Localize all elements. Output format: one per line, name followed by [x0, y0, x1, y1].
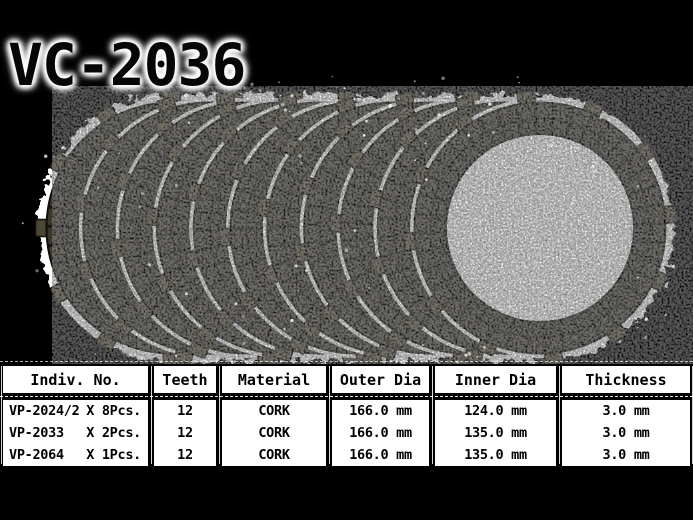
- quantity: X 2Pcs.: [86, 425, 141, 441]
- cell-outer-dia: 166.0 mm: [332, 400, 429, 422]
- cell-inner-dia: 135.0 mm: [435, 444, 556, 466]
- table-gridline: [559, 366, 560, 464]
- table-gridline: [151, 366, 152, 464]
- page-title: VC-2036: [8, 36, 245, 94]
- column-header-thickness: Thickness: [562, 366, 690, 393]
- table-gridline: [692, 366, 693, 464]
- column-header-indiv-no: Indiv. No.: [3, 366, 148, 393]
- cell-material: CORK: [222, 422, 326, 444]
- part-number: VP-2064: [9, 447, 64, 463]
- cell-indiv-no: VP-2033 X 2Pcs.: [3, 422, 148, 444]
- cell-inner-dia: 124.0 mm: [435, 400, 556, 422]
- cell-thickness: 3.0 mm: [562, 400, 690, 422]
- table-body: VP-2024/2 X 8Pcs. 12 CORK 166.0 mm 124.0…: [0, 400, 693, 466]
- cell-teeth: 12: [154, 422, 216, 444]
- table-row: VP-2033 X 2Pcs. 12 CORK 166.0 mm 135.0 m…: [0, 422, 693, 444]
- cell-teeth: 12: [154, 400, 216, 422]
- table-header-row: Indiv. No. Teeth Material Outer Dia Inne…: [0, 364, 693, 393]
- quantity: X 1Pcs.: [86, 447, 141, 463]
- cell-outer-dia: 166.0 mm: [332, 422, 429, 444]
- cell-thickness: 3.0 mm: [562, 444, 690, 466]
- table-gridline: [219, 366, 220, 464]
- cell-teeth: 12: [154, 444, 216, 466]
- cell-outer-dia: 166.0 mm: [332, 444, 429, 466]
- column-header-teeth: Teeth: [154, 366, 216, 393]
- table-top-dashed-line: [0, 361, 693, 362]
- datasheet-page: VC-2036 Indiv. No. Teeth Material Outer …: [0, 0, 693, 520]
- cell-inner-dia: 135.0 mm: [435, 422, 556, 444]
- column-header-material: Material: [222, 366, 326, 393]
- cell-indiv-no: VP-2024/2 X 8Pcs.: [3, 400, 148, 422]
- cell-material: CORK: [222, 400, 326, 422]
- table-gridline: [329, 366, 330, 464]
- cell-indiv-no: VP-2064 X 1Pcs.: [3, 444, 148, 466]
- table-separator: [0, 393, 693, 400]
- photo-noise-light: [52, 86, 693, 370]
- part-number: VP-2033: [9, 425, 64, 441]
- quantity: X 8Pcs.: [86, 403, 141, 419]
- column-header-outer-dia: Outer Dia: [332, 366, 429, 393]
- cell-thickness: 3.0 mm: [562, 422, 690, 444]
- column-header-inner-dia: Inner Dia: [435, 366, 556, 393]
- spec-table: Indiv. No. Teeth Material Outer Dia Inne…: [0, 364, 693, 466]
- table-row: VP-2024/2 X 8Pcs. 12 CORK 166.0 mm 124.0…: [0, 400, 693, 422]
- cell-material: CORK: [222, 444, 326, 466]
- part-number: VP-2024/2: [9, 403, 79, 419]
- table-gridline: [432, 366, 433, 464]
- table-gridline: [1, 366, 2, 464]
- table-row: VP-2064 X 1Pcs. 12 CORK 166.0 mm 135.0 m…: [0, 444, 693, 466]
